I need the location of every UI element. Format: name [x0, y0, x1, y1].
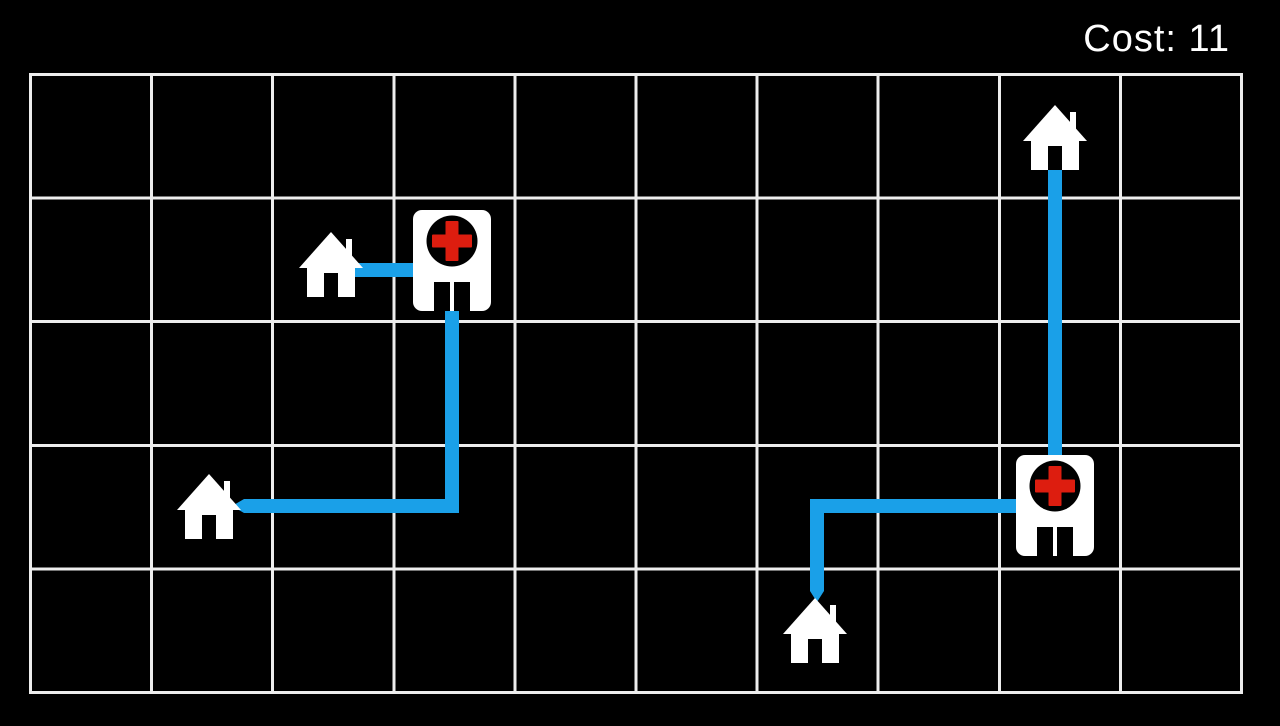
house-icon	[783, 597, 847, 663]
house-2[interactable]	[177, 473, 241, 544]
house-3[interactable]	[783, 597, 847, 668]
hospital-2[interactable]	[1016, 455, 1094, 561]
house-1[interactable]	[299, 231, 363, 302]
hospital-1[interactable]	[413, 210, 491, 316]
path-segment-house3-vertical	[810, 499, 824, 591]
hospital-door	[434, 282, 450, 311]
house-door	[202, 515, 216, 539]
hospital-icon	[413, 210, 491, 311]
path-segment-hospital1-vertical	[445, 305, 459, 513]
house-door	[808, 639, 822, 663]
hospital-door	[1037, 527, 1053, 556]
cost-label: Cost: 11	[1083, 18, 1230, 61]
hospital-door	[1057, 527, 1073, 556]
house-icon	[177, 473, 241, 539]
path-segment-hospital2-horizontal	[810, 499, 1018, 513]
house-4[interactable]	[1023, 104, 1087, 175]
house-door	[1048, 146, 1062, 170]
hospital-door	[454, 282, 470, 311]
house-door	[324, 273, 338, 297]
path-segment-house4-hospital2	[1048, 168, 1062, 458]
house-icon	[1023, 104, 1087, 170]
path-segment-house2-horizontal	[244, 499, 459, 513]
game-stage: Cost: 11	[0, 0, 1280, 726]
house-icon	[299, 231, 363, 297]
hospital-icon	[1016, 455, 1094, 556]
